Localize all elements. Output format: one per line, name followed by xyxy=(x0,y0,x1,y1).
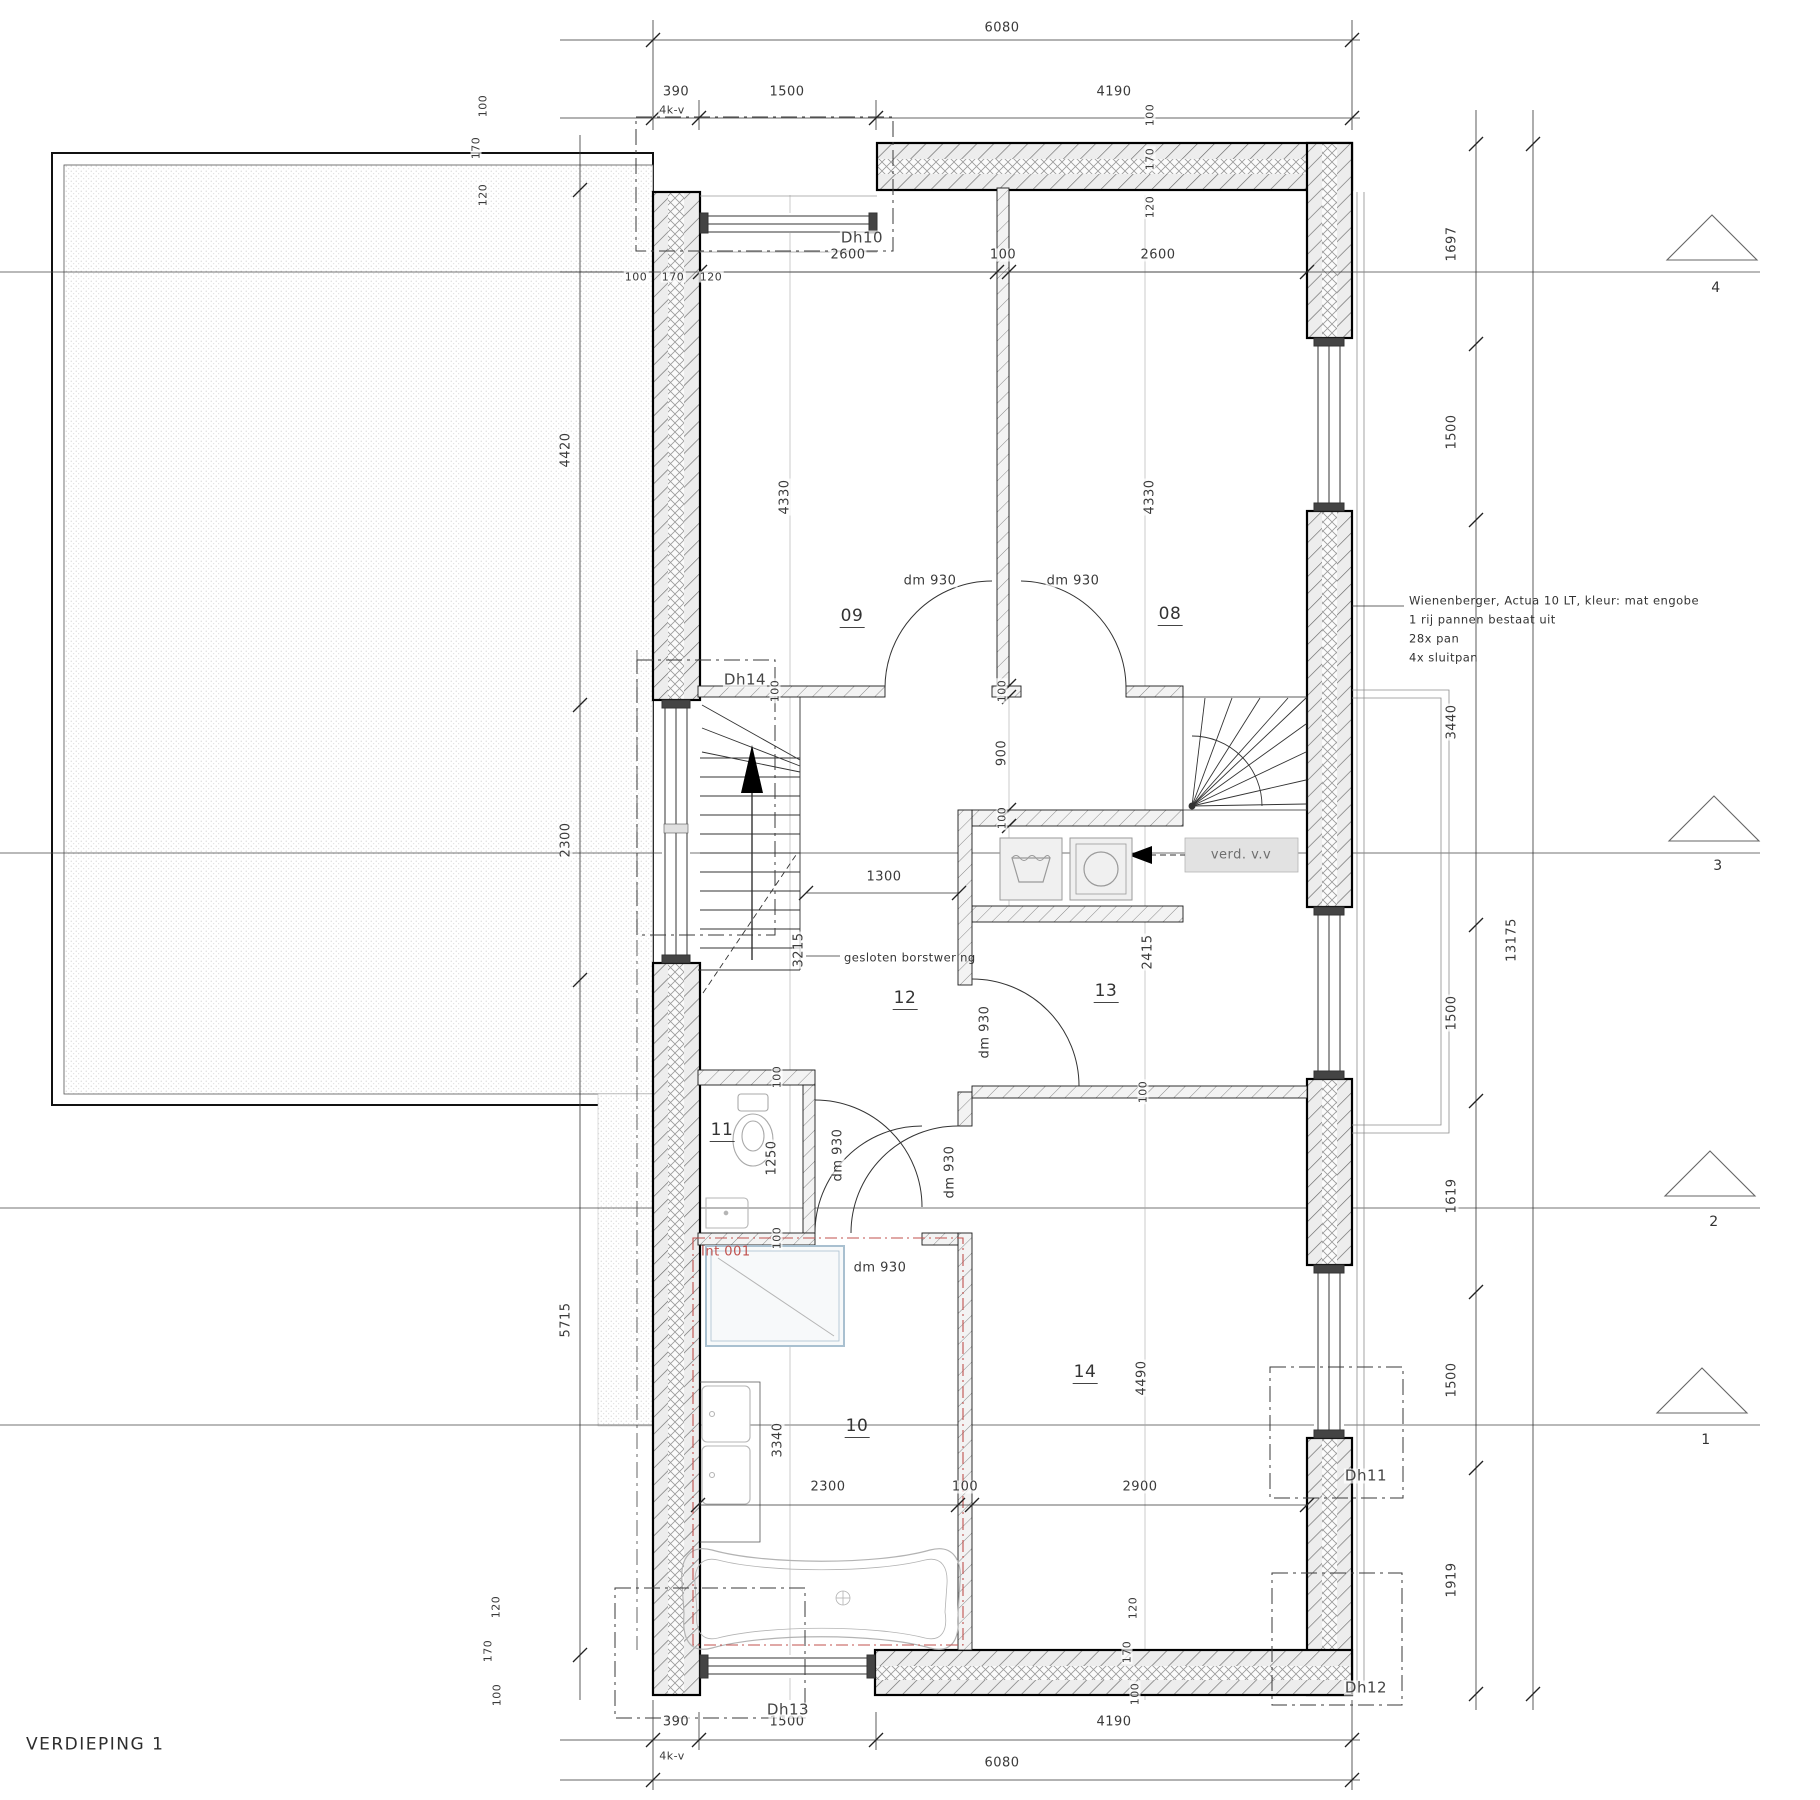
verd-vv-label: verd. v.v xyxy=(1210,849,1272,862)
roof-note-1: Wienenberger, Actua 10 LT, kleur: mat en… xyxy=(1408,595,1700,607)
laundry-sink-symbol xyxy=(1000,838,1062,900)
dim-bot-4kv: 4k-v xyxy=(658,1751,686,1762)
exterior-wall-bottom xyxy=(875,1650,1352,1695)
door-label-bath: dm 930 xyxy=(853,1262,908,1275)
dim-wc-wall-100: 100 xyxy=(772,1065,783,1090)
room-label-12: 12 xyxy=(893,990,918,1010)
dim-bwall-170-l: 170 xyxy=(483,1639,494,1664)
grid-number-4: 4 xyxy=(1710,281,1721,295)
dim-top-4kv: 4k-v xyxy=(658,105,686,116)
dim-bwall-170-r: 170 xyxy=(1122,1640,1133,1665)
label-dh11: Dh11 xyxy=(1344,1469,1388,1484)
dim-wall-100-rot: 100 xyxy=(478,94,489,119)
dim-room09-width: 2600 xyxy=(829,249,866,262)
grid-number-3: 3 xyxy=(1712,859,1723,873)
dim-top-390: 390 xyxy=(662,86,690,99)
dim-wall-120: 120 xyxy=(699,272,724,283)
dim-left-5715: 5715 xyxy=(560,1301,573,1338)
dim-wall-170-rot2: 170 xyxy=(1145,147,1156,172)
floor-plan-sheet: 6080 390 1500 4190 4k-v 2600 100 2600 10… xyxy=(0,0,1820,1800)
dim-partition-100: 100 xyxy=(989,249,1017,262)
washing-machine-symbol xyxy=(1070,838,1132,900)
dim-right-3440: 3440 xyxy=(1446,703,1459,740)
dim-stair-3215: 3215 xyxy=(793,931,806,968)
dim-spiral-100b: 100 xyxy=(997,806,1008,831)
dim-bath-width: 2300 xyxy=(809,1481,846,1494)
grid-markers xyxy=(1657,215,1759,1413)
dim-right-total: 13175 xyxy=(1506,917,1519,963)
window-right-2 xyxy=(1314,907,1344,1079)
room-label-13: 13 xyxy=(1094,983,1119,1003)
bathtub xyxy=(682,1549,961,1650)
dim-bot-total: 6080 xyxy=(983,1757,1020,1770)
window-dh14-left xyxy=(662,700,690,963)
dim-wall-100-rot2: 100 xyxy=(1145,103,1156,128)
interior-partitions xyxy=(698,188,1307,1650)
dim-bath-partition: 100 xyxy=(951,1481,979,1494)
dim-right-1500b: 1500 xyxy=(1446,994,1459,1031)
spiral-staircase xyxy=(1183,697,1307,810)
room-label-14: 14 xyxy=(1073,1364,1098,1384)
door-label-wc: dm 930 xyxy=(832,1128,845,1183)
window-dh13-bottom xyxy=(700,1655,875,1678)
dim-bot-4190: 4190 xyxy=(1095,1716,1132,1729)
staircase xyxy=(698,697,800,993)
roof-note-3: 28x pan xyxy=(1408,633,1460,645)
dim-right-1697: 1697 xyxy=(1446,225,1459,262)
dim-room09-height: 4330 xyxy=(779,478,792,515)
door-label-08: dm 930 xyxy=(1046,575,1101,588)
room-label-09: 09 xyxy=(840,608,865,628)
dim-wall-170-rot: 170 xyxy=(471,136,482,161)
label-dh12: Dh12 xyxy=(1344,1681,1388,1696)
dim-bwall-100-r: 100 xyxy=(1130,1682,1141,1707)
dim-bwall-120-l: 120 xyxy=(491,1595,502,1620)
flat-roof-area xyxy=(52,153,653,1426)
exterior-wall-top xyxy=(877,143,1352,190)
door-label-14: dm 930 xyxy=(944,1145,957,1200)
dim-top-4190: 4190 xyxy=(1095,86,1132,99)
dim-right-1500c: 1500 xyxy=(1446,1361,1459,1398)
dim-wall-170: 170 xyxy=(661,272,686,283)
grid-number-1: 1 xyxy=(1700,1433,1711,1447)
dim-bed-width: 2900 xyxy=(1121,1481,1158,1494)
door-label-09: dm 930 xyxy=(903,575,958,588)
label-dh10: Dh10 xyxy=(840,231,884,246)
dim-spiral-100a: 100 xyxy=(997,679,1008,704)
dim-left-4420: 4420 xyxy=(560,431,573,468)
dim-room08-height: 4330 xyxy=(1144,478,1157,515)
dim-spiral-900: 900 xyxy=(996,739,1009,767)
dim-right-1919: 1919 xyxy=(1446,1561,1459,1598)
dim-right-1500a: 1500 xyxy=(1446,413,1459,450)
int001-label: Int 001 xyxy=(700,1246,752,1259)
dim-room08-width: 2600 xyxy=(1139,249,1176,262)
dim-redwall-100: 100 xyxy=(772,1226,783,1251)
dim-bath-3340: 3340 xyxy=(772,1421,785,1458)
room-label-08: 08 xyxy=(1158,606,1183,626)
dim-bwall-120-r: 120 xyxy=(1128,1596,1139,1621)
sheet-title: VERDIEPING 1 xyxy=(25,1737,165,1754)
room-label-11: 11 xyxy=(710,1122,735,1142)
roof-note-4: 4x sluitpan xyxy=(1408,652,1479,664)
dim-room13-2415: 2415 xyxy=(1142,933,1155,970)
window-right-1 xyxy=(1314,338,1344,511)
dim-top-total: 6080 xyxy=(983,22,1020,35)
dim-wall-100: 100 xyxy=(624,272,649,283)
dim-bot-390: 390 xyxy=(662,1716,690,1729)
washbasin-1 xyxy=(702,1386,750,1442)
label-dh14: Dh14 xyxy=(723,673,767,688)
dim-p1-100: 100 xyxy=(770,679,781,704)
grid-number-2: 2 xyxy=(1708,1215,1719,1229)
dim-hall-1300: 1300 xyxy=(865,871,902,884)
shower xyxy=(706,1246,844,1346)
room-label-10: 10 xyxy=(845,1418,870,1438)
dim-left-2300: 2300 xyxy=(560,821,573,858)
dim-wall-120-rot2: 120 xyxy=(1145,195,1156,220)
dim-p3-100: 100 xyxy=(1138,1080,1149,1105)
dim-top-1500: 1500 xyxy=(768,86,805,99)
floor-plan-drawing xyxy=(0,0,1820,1800)
borstwering-note: gesloten borstwering xyxy=(843,952,977,964)
dim-wall-120-rot: 120 xyxy=(478,183,489,208)
dim-wc-1250: 1250 xyxy=(766,1139,779,1176)
door-label-13: dm 930 xyxy=(979,1005,992,1060)
window-right-3 xyxy=(1314,1265,1344,1438)
dim-room14-4490: 4490 xyxy=(1136,1359,1149,1396)
washbasin-2 xyxy=(702,1446,750,1504)
dim-right-1619: 1619 xyxy=(1446,1177,1459,1214)
label-dh13: Dh13 xyxy=(766,1703,810,1718)
dimension-lines xyxy=(560,20,1533,1790)
wc-handbasin xyxy=(706,1198,748,1228)
roof-note-2: 1 rij pannen bestaat uit xyxy=(1408,614,1557,626)
dim-bwall-100-l: 100 xyxy=(492,1683,503,1708)
